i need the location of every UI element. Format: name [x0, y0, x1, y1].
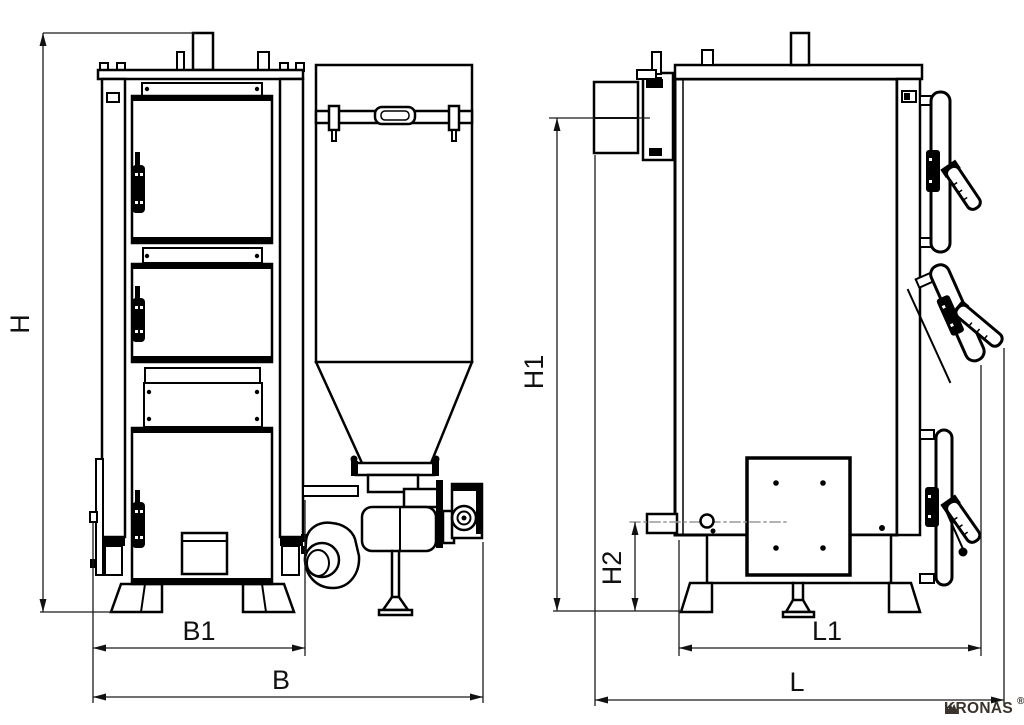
- leg-flare: [383, 597, 408, 610]
- junction-box: [404, 489, 438, 507]
- hinge-pip: [140, 201, 143, 204]
- arrowhead: [40, 599, 47, 612]
- arrowhead: [40, 33, 47, 46]
- hinge-pip: [140, 536, 143, 539]
- hinge-pip: [135, 306, 138, 309]
- hinge-strap: [920, 430, 934, 439]
- column-base-block: [105, 546, 122, 575]
- panel-bolt: [820, 480, 826, 486]
- center-foot-base: [783, 612, 814, 617]
- right-column: [280, 79, 303, 537]
- hinge-pin: [135, 490, 140, 503]
- return-pipe-stub: [647, 514, 677, 533]
- crown-flame-icon: [944, 701, 960, 715]
- dimension-h1: H1: [519, 118, 682, 611]
- cleanout-panel: [747, 458, 850, 575]
- column-base-band: [102, 537, 125, 546]
- dim-label-h: H: [5, 314, 35, 334]
- gearbox-shaft: [462, 516, 467, 521]
- door-hinge: [132, 298, 145, 342]
- dim-label-h2: H2: [597, 551, 627, 586]
- sensor-pocket: [107, 93, 119, 102]
- door-panel: [132, 96, 272, 243]
- front-door-middle: [132, 264, 272, 362]
- bolt: [255, 417, 259, 421]
- bolt: [147, 390, 151, 394]
- pellet-hopper: [316, 65, 472, 476]
- left-column: [102, 79, 125, 537]
- latch-pip: [928, 495, 931, 498]
- latch-pin: [452, 130, 456, 141]
- pipe-stub-left: [177, 52, 184, 70]
- brand-logo: KRONAS ®: [944, 701, 1024, 717]
- side-foot-left: [681, 583, 712, 612]
- panel-plate: [747, 458, 850, 575]
- pipe-stub-right: [258, 52, 269, 70]
- hinge-pip: [140, 330, 143, 333]
- elbow-pipe-horizontal: [637, 70, 656, 79]
- arrowhead: [554, 598, 561, 611]
- bolt: [255, 254, 259, 258]
- flange-bolt-head: [351, 456, 358, 463]
- hinge-pip: [140, 173, 143, 176]
- body-bolt: [879, 525, 885, 531]
- top-plate: [98, 70, 303, 79]
- latch-pip: [928, 515, 931, 518]
- hinge-strap: [920, 574, 934, 583]
- boiler-dimension-drawing: H B1 B H1: [0, 0, 1024, 725]
- arrowhead: [679, 645, 692, 652]
- drain-valve-dot: [711, 529, 716, 534]
- lower-strip-a: [145, 368, 260, 383]
- front-top-connections: [177, 33, 269, 70]
- column-base-band: [280, 537, 303, 546]
- funnel-flange: [356, 463, 434, 475]
- latch-pip: [929, 180, 932, 183]
- hinge-pin: [135, 286, 140, 299]
- arrowhead: [968, 645, 981, 652]
- corner-detail-fill: [904, 93, 910, 100]
- mid-strip: [143, 248, 262, 263]
- hinge-pip: [135, 536, 138, 539]
- front-foot-right: [243, 584, 294, 612]
- lid-latch-right: [449, 106, 459, 130]
- center-foot-flare: [786, 600, 810, 612]
- hinge-pip: [140, 306, 143, 309]
- dim-label-l1: L1: [812, 616, 842, 646]
- panel-bolt: [773, 480, 779, 486]
- drain-valve: [701, 515, 714, 528]
- combustion-fan: [301, 523, 359, 588]
- flange-bolt: [351, 461, 358, 476]
- side-pipe-stub: [702, 50, 713, 65]
- hinge-pip: [135, 201, 138, 204]
- door-panel: [132, 264, 272, 362]
- arrowhead: [595, 697, 608, 704]
- funnel-wall: [431, 362, 472, 463]
- funnel-wall: [316, 362, 362, 463]
- hinge-pip: [140, 510, 143, 513]
- side-foot-right: [889, 583, 920, 612]
- bolt: [145, 254, 149, 258]
- dim-label-b1: B1: [182, 616, 215, 646]
- lid-latch-left: [329, 106, 339, 130]
- arrowhead: [292, 645, 305, 652]
- arrowhead: [554, 118, 561, 131]
- column-base-block: [282, 546, 299, 575]
- hinge-pin: [135, 152, 140, 167]
- hinge-pip: [135, 330, 138, 333]
- door-latch: [926, 150, 940, 192]
- leg-base: [379, 610, 412, 615]
- bolt: [255, 87, 259, 91]
- door-hinge: [132, 502, 145, 548]
- side-door-top: [926, 92, 984, 252]
- flange-bolt-head: [433, 456, 440, 463]
- chimney-stub: [193, 33, 213, 70]
- arrowhead: [632, 522, 639, 535]
- bolt: [145, 87, 149, 91]
- dimension-h2: H2: [597, 522, 639, 611]
- arrowhead: [470, 694, 483, 701]
- side-view: [594, 33, 1006, 617]
- door-band: [132, 428, 272, 433]
- dim-label-h1: H1: [519, 355, 549, 390]
- front-view: [90, 33, 482, 615]
- door-band: [132, 96, 272, 101]
- arrowhead: [93, 694, 106, 701]
- door-latch: [925, 487, 939, 527]
- door-band: [132, 578, 272, 584]
- arrowhead: [632, 598, 639, 611]
- auger-feeder: [362, 475, 482, 615]
- hinge-pip: [135, 173, 138, 176]
- collar-bolt: [649, 148, 662, 156]
- technical-drawing-page: H B1 B H1: [0, 0, 1024, 725]
- bolt: [147, 417, 151, 421]
- flue-outlet: [594, 52, 673, 160]
- bolt: [255, 390, 259, 394]
- latch-pin: [332, 130, 336, 141]
- arrowhead: [93, 645, 106, 652]
- door-hinge: [132, 165, 145, 213]
- dim-label-b: B: [272, 665, 290, 695]
- door-band: [132, 264, 272, 269]
- burner-duct: [303, 486, 358, 496]
- door-band: [132, 237, 272, 243]
- link-pin: [959, 548, 968, 557]
- side-top-plate: [675, 65, 922, 79]
- flange-bolt: [432, 461, 439, 476]
- door-band: [132, 356, 272, 362]
- side-chimney-stub: [791, 33, 809, 65]
- side-doors: [908, 92, 1006, 585]
- side-stub: [90, 512, 97, 522]
- side-door-middle-open: [908, 262, 1006, 382]
- ash-window: [182, 533, 227, 574]
- front-door-top: [132, 96, 272, 243]
- elbow-base: [646, 79, 663, 88]
- front-door-bottom: [132, 428, 272, 584]
- latch-pip: [929, 158, 932, 161]
- panel-bolt: [820, 545, 826, 551]
- registered-mark: ®: [1017, 697, 1024, 707]
- panel-bolt: [773, 545, 779, 551]
- hinge-pip: [135, 510, 138, 513]
- gearbox-band: [476, 489, 482, 534]
- dim-label-l: L: [789, 667, 804, 697]
- upper-strip: [142, 83, 262, 96]
- side-door-bottom: [925, 430, 984, 585]
- front-foot-left: [111, 584, 162, 612]
- lower-strip-b: [144, 383, 262, 427]
